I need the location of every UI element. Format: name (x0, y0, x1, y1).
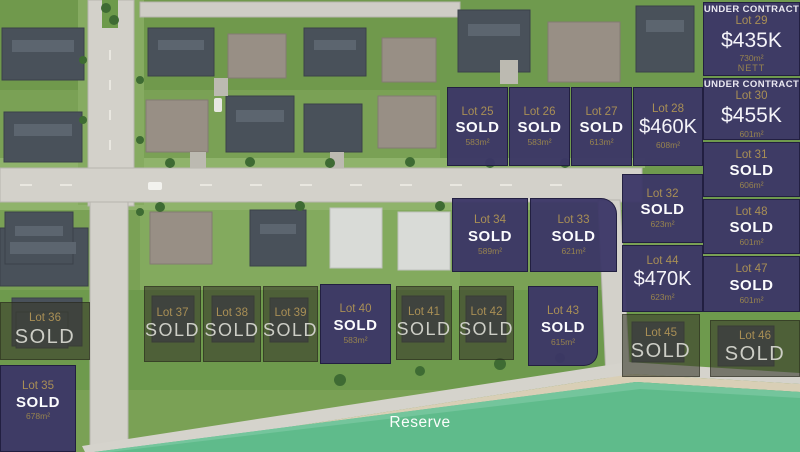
lot-parcel-40[interactable]: Lot 40SOLD583m² (320, 284, 391, 364)
lot-29-banner: UNDER CONTRACT (704, 4, 799, 15)
lot-35-area: 678m² (26, 411, 50, 421)
lot-43-status: SOLD (541, 319, 585, 337)
lot-29-price: $435K (721, 29, 782, 54)
lot-44-price: $470K (634, 268, 692, 292)
lot-parcel-42[interactable]: Lot 42SOLD (459, 286, 514, 360)
lot-47-status: SOLD (729, 277, 773, 295)
lot-parcel-26[interactable]: Lot 26SOLD583m² (509, 87, 570, 166)
lot-31-label: Lot 31 (736, 149, 768, 163)
lot-37-status: SOLD (145, 320, 200, 341)
lot-39-status: SOLD (263, 320, 318, 341)
lot-31-area: 606m² (739, 180, 763, 190)
lot-26-status: SOLD (517, 119, 561, 137)
lot-27-label: Lot 27 (586, 106, 618, 120)
lot-37-label: Lot 37 (157, 307, 189, 321)
lot-33-area: 621m² (561, 246, 585, 256)
lot-26-label: Lot 26 (524, 106, 556, 120)
lot-36-status: SOLD (15, 326, 75, 350)
lot-parcel-34[interactable]: Lot 34SOLD589m² (452, 198, 528, 272)
lot-parcel-36[interactable]: Lot 36SOLD (0, 302, 90, 360)
lot-27-status: SOLD (579, 119, 623, 137)
lot-40-area: 583m² (343, 335, 367, 345)
lot-34-status: SOLD (468, 228, 512, 246)
lot-parcel-37[interactable]: Lot 37SOLD (144, 286, 201, 362)
lot-28-label: Lot 28 (652, 103, 684, 117)
lot-47-area: 601m² (739, 295, 763, 305)
lot-parcel-28[interactable]: Lot 28$460K608m² (633, 87, 703, 166)
lot-29-area: 730m² (739, 53, 763, 63)
lot-32-area: 623m² (650, 219, 674, 229)
lot-parcel-29[interactable]: UNDER CONTRACTLot 29$435K730m²NETT (703, 2, 800, 76)
lot-25-status: SOLD (455, 119, 499, 137)
lot-30-price: $455K (721, 104, 782, 129)
lot-33-status: SOLD (551, 228, 595, 246)
lot-30-label: Lot 30 (736, 90, 768, 104)
lot-44-label: Lot 44 (647, 255, 679, 269)
lot-parcel-46[interactable]: Lot 46SOLD (710, 320, 800, 377)
lot-44-area: 623m² (650, 292, 674, 302)
lot-38-status: SOLD (204, 320, 259, 341)
lot-29-note: NETT (738, 63, 766, 74)
lot-25-label: Lot 25 (462, 106, 494, 120)
lot-46-label: Lot 46 (739, 330, 771, 344)
subdivision-sales-map: Lot 25SOLD583m²Lot 26SOLD583m²Lot 27SOLD… (0, 0, 800, 452)
lot-45-status: SOLD (631, 340, 691, 364)
lot-parcel-27[interactable]: Lot 27SOLD613m² (571, 87, 632, 166)
lot-42-status: SOLD (459, 319, 514, 340)
lot-43-area: 615m² (551, 337, 575, 347)
lot-38-label: Lot 38 (216, 307, 248, 321)
lot-40-label: Lot 40 (340, 303, 372, 317)
lot-28-area: 608m² (656, 140, 680, 150)
lot-47-label: Lot 47 (736, 263, 768, 277)
lot-36-label: Lot 36 (29, 312, 61, 326)
lot-31-status: SOLD (729, 162, 773, 180)
lot-48-status: SOLD (729, 219, 773, 237)
lot-27-area: 613m² (589, 137, 613, 147)
lot-26-area: 583m² (527, 137, 551, 147)
lot-30-banner: UNDER CONTRACT (704, 79, 799, 90)
lot-parcel-39[interactable]: Lot 39SOLD (263, 286, 318, 362)
lot-45-label: Lot 45 (645, 327, 677, 341)
lot-parcel-31[interactable]: Lot 31SOLD606m² (703, 142, 800, 197)
lot-40-status: SOLD (333, 317, 377, 335)
reserve-label: Reserve (330, 414, 510, 432)
lot-30-area: 601m² (739, 129, 763, 139)
lot-46-status: SOLD (725, 343, 785, 367)
lot-parcel-47[interactable]: Lot 47SOLD601m² (703, 256, 800, 312)
lot-35-label: Lot 35 (22, 380, 54, 394)
lot-25-area: 583m² (465, 137, 489, 147)
lot-28-price: $460K (639, 116, 697, 140)
lot-32-status: SOLD (640, 201, 684, 219)
lot-41-status: SOLD (396, 319, 451, 340)
lot-parcel-33[interactable]: Lot 33SOLD621m² (530, 198, 617, 272)
lot-parcel-48[interactable]: Lot 48SOLD601m² (703, 199, 800, 254)
lot-32-label: Lot 32 (647, 188, 679, 202)
lot-parcel-35[interactable]: Lot 35SOLD678m² (0, 365, 76, 452)
lot-parcel-32[interactable]: Lot 32SOLD623m² (622, 174, 703, 243)
lot-parcel-41[interactable]: Lot 41SOLD (396, 286, 452, 360)
lot-41-label: Lot 41 (408, 306, 440, 320)
lot-parcel-43[interactable]: Lot 43SOLD615m² (528, 286, 598, 366)
lot-43-label: Lot 43 (547, 305, 579, 319)
lot-33-label: Lot 33 (558, 214, 590, 228)
lot-parcel-30[interactable]: UNDER CONTRACTLot 30$455K601m² (703, 78, 800, 140)
lot-parcel-44[interactable]: Lot 44$470K623m² (622, 245, 703, 312)
lot-parcel-25[interactable]: Lot 25SOLD583m² (447, 87, 508, 166)
lot-34-label: Lot 34 (474, 214, 506, 228)
lot-parcel-45[interactable]: Lot 45SOLD (622, 314, 700, 377)
lot-48-label: Lot 48 (736, 206, 768, 220)
lot-parcel-38[interactable]: Lot 38SOLD (203, 286, 261, 362)
lot-34-area: 589m² (478, 246, 502, 256)
lot-39-label: Lot 39 (275, 307, 307, 321)
lot-35-status: SOLD (16, 394, 60, 412)
lot-29-label: Lot 29 (736, 15, 768, 29)
lot-42-label: Lot 42 (471, 306, 503, 320)
lot-48-area: 601m² (739, 237, 763, 247)
